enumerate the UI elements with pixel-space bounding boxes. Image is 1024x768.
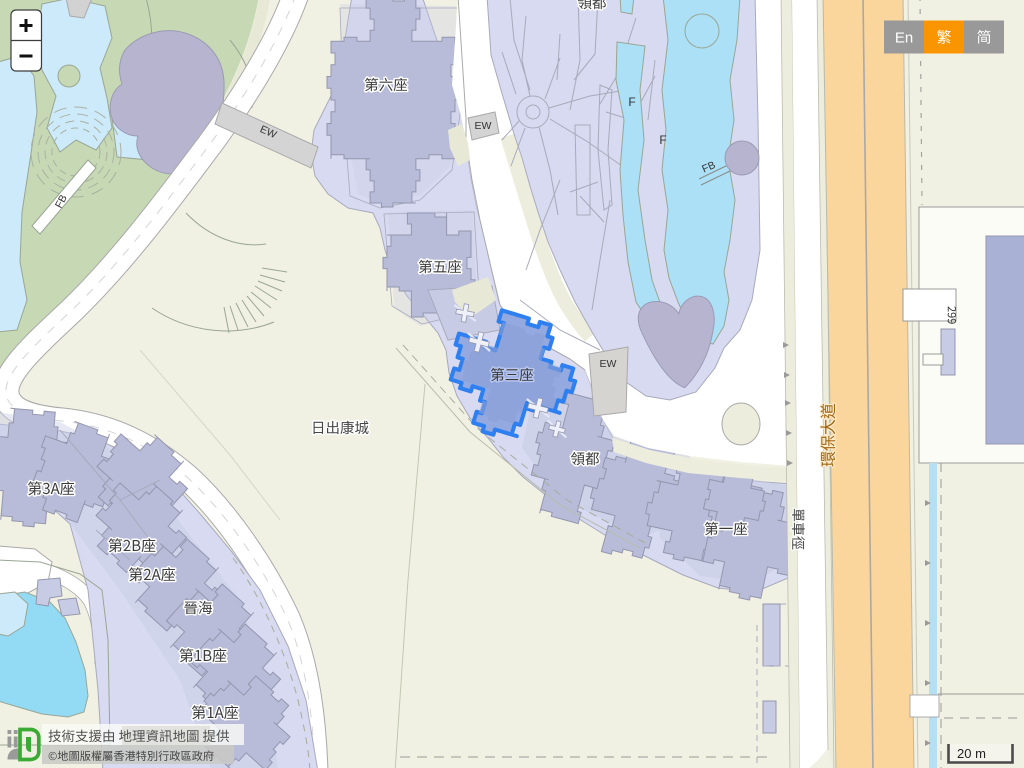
svg-text:F: F [628, 95, 635, 109]
svg-text:EW: EW [475, 120, 492, 132]
svg-text:F: F [659, 133, 666, 147]
svg-text:En: En [895, 30, 913, 47]
svg-text:20 m: 20 m [957, 746, 986, 761]
svg-text:EW: EW [600, 358, 617, 370]
